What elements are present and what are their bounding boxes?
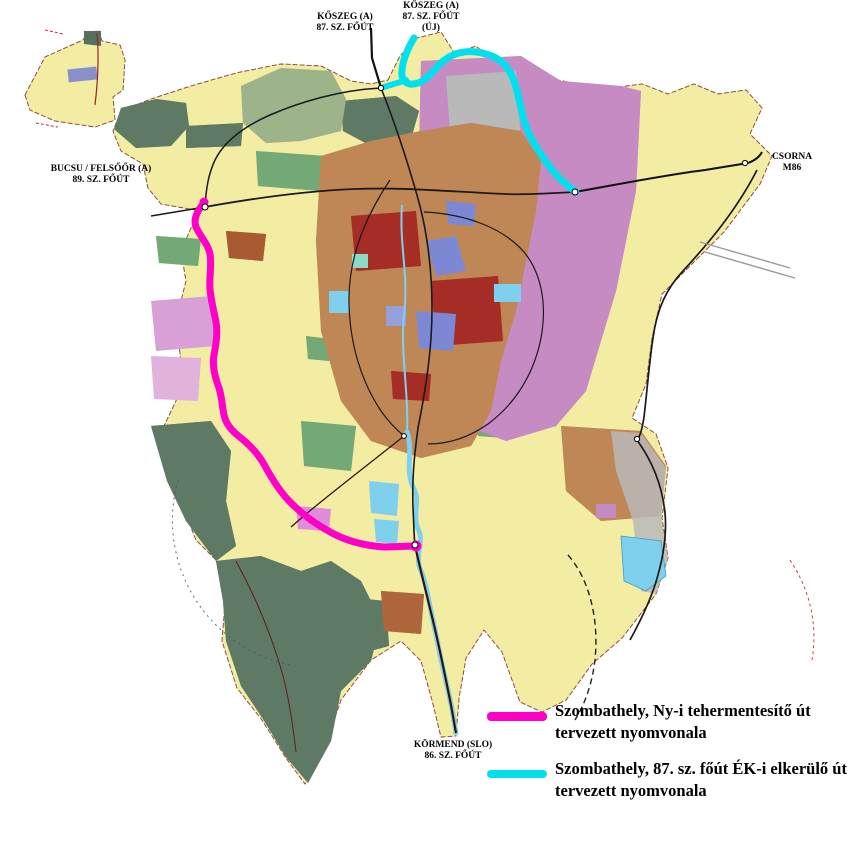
legend-swatch-magenta	[487, 712, 547, 721]
legend: Szombathely, Ny-i tehermentesítő út terv…	[484, 700, 856, 816]
boundary-dash-se	[790, 560, 814, 660]
label-line: 89. SZ. FŐÚT	[36, 175, 166, 186]
legend-item-ne-bypass: Szombathely, 87. sz. főút ÉK-i elkerülő …	[484, 758, 856, 804]
label-csorna-road: CSORNA M86	[759, 152, 825, 174]
label-line: BUCSU / FELSŐŐR (A)	[36, 164, 166, 175]
label-line: CSORNA	[759, 152, 825, 163]
legend-item-west-relief: Szombathely, Ny-i tehermentesítő út terv…	[484, 700, 856, 746]
label-line: (ÚJ)	[390, 23, 472, 34]
exclave-green-zone	[84, 31, 101, 46]
label-line: KŐSZEG (A)	[299, 12, 391, 23]
label-koszeg-new-road: KŐSZEG (A) 87. SZ. FŐÚT (ÚJ)	[390, 1, 472, 34]
legend-label: Szombathely, Ny-i tehermentesítő út terv…	[555, 700, 856, 744]
legend-label: Szombathely, 87. sz. főút ÉK-i elkerülő …	[555, 758, 856, 802]
label-bucsu-road: BUCSU / FELSŐŐR (A) 89. SZ. FŐÚT	[36, 164, 166, 186]
map-annotation-marks	[700, 242, 795, 278]
road-87-north	[371, 28, 381, 88]
label-line: KŐSZEG (A)	[390, 1, 472, 12]
legend-swatch-cyan	[487, 770, 547, 778]
label-line: 87. SZ. FŐÚT	[390, 12, 472, 23]
label-line: 87. SZ. FŐÚT	[299, 23, 391, 34]
label-koszeg-old-road: KŐSZEG (A) 87. SZ. FŐÚT	[299, 12, 391, 34]
map-page: KŐSZEG (A) 87. SZ. FŐÚT KŐSZEG (A) 87. S…	[0, 0, 856, 841]
label-line: M86	[759, 163, 825, 174]
